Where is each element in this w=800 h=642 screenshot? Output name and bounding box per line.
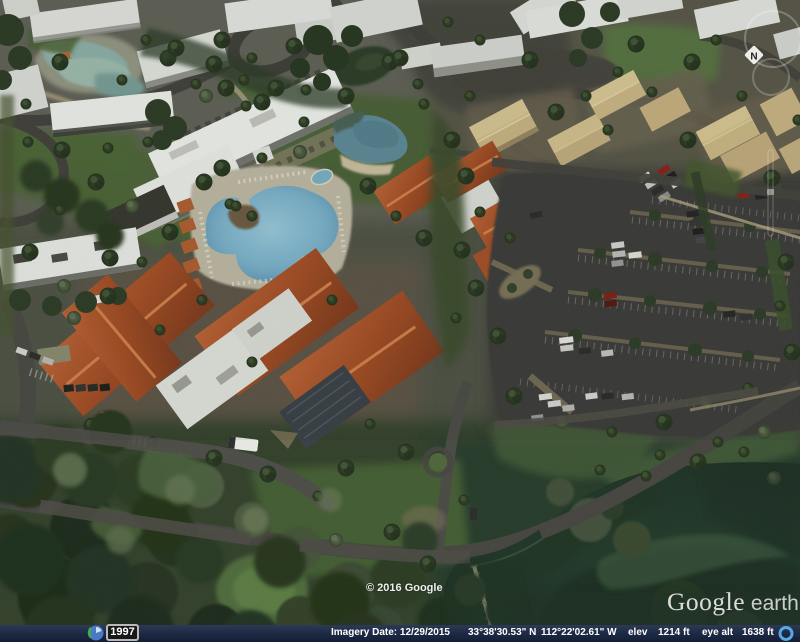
svg-text:N: N xyxy=(750,52,757,63)
